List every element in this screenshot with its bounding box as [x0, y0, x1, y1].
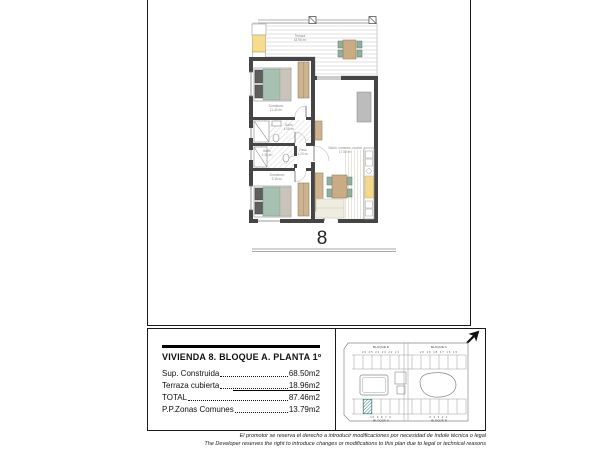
area-row: Terraza cubierta 18.96m2	[162, 378, 320, 390]
area-value: 13.79m2	[289, 405, 320, 414]
disclaimer: El promotor se reserva el derecho a intr…	[204, 433, 486, 448]
room-area: 1.20 m²	[298, 152, 309, 156]
title-rule	[162, 345, 320, 348]
highlighted-unit	[363, 399, 371, 413]
area-label: Terraza cubierta	[162, 381, 219, 390]
block-label: BLOQUE B	[431, 419, 447, 423]
dot-leader	[235, 412, 288, 413]
dot-leader	[220, 388, 288, 389]
dining-table-icon	[332, 175, 347, 198]
svg-text:20 19 18 17 16 15: 20 19 18 17 16 15	[420, 350, 458, 354]
planter-icon	[252, 24, 266, 58]
room-area: 9.15 m²	[272, 177, 283, 181]
area-label: Sup. Construida	[162, 369, 219, 378]
room-area: 17.50 m²	[339, 150, 352, 154]
plan-sheet: Terraza 18.96 m² Dormitorio 11.40 m² Bañ…	[0, 0, 615, 454]
room-area: 18.96 m²	[294, 38, 307, 42]
floor-plan-drawing: Terraza 18.96 m² Dormitorio 11.40 m² Bañ…	[0, 0, 615, 330]
bedroom-2-furniture	[254, 183, 309, 217]
unit-number: 8	[317, 228, 328, 249]
area-row: Sup. Construida 68.50m2	[162, 366, 320, 378]
area-row: P.P.Zonas Comunes 13.79m2	[162, 402, 320, 414]
dot-leader	[220, 376, 287, 377]
dot-leader	[188, 400, 288, 401]
area-row: TOTAL 87.46m2	[162, 390, 320, 402]
bedroom-1-furniture	[254, 62, 309, 101]
base-line	[252, 249, 396, 252]
svg-text:26 25 24 23 22 21: 26 25 24 23 22 21	[362, 350, 400, 354]
block-label: BLOQUE C	[431, 345, 448, 349]
room-area: 2.30 m²	[262, 153, 273, 157]
disclaimer-line-en: The Developer reserves the right to intr…	[204, 441, 486, 449]
pergola-beam	[258, 17, 377, 24]
block-label: BLOQUE D	[373, 345, 390, 349]
area-value: 87.46m2	[289, 393, 320, 402]
area-value: 68.50m2	[289, 369, 320, 378]
sofa-icon	[316, 199, 344, 218]
terrace-table-icon	[338, 40, 362, 59]
area-label: P.P.Zonas Comunes	[162, 405, 234, 414]
north-arrow-icon	[463, 329, 483, 347]
unit-numbers: 26 25 24 23 22 21 20 19 18 17 16 15 10 9…	[362, 350, 458, 419]
site-plan-cell: 26 25 24 23 22 21 20 19 18 17 16 15 10 9…	[336, 329, 485, 430]
top-plots	[352, 355, 466, 369]
room-area: 4.05 m²	[284, 127, 295, 131]
room-area: 11.40 m²	[270, 108, 282, 112]
disclaimer-line-es: El promotor se reserva el derecho a intr…	[204, 433, 486, 441]
title-block: VIVIENDA 8. BLOQUE A. PLANTA 1º Sup. Con…	[148, 329, 336, 430]
block-labels: BLOQUE D BLOQUE C BLOQUE A BLOQUE B	[373, 345, 448, 423]
area-label: TOTAL	[162, 393, 187, 402]
title-block-panel: VIVIENDA 8. BLOQUE A. PLANTA 1º Sup. Con…	[147, 328, 486, 431]
site-plan-drawing: 26 25 24 23 22 21 20 19 18 17 16 15 10 9…	[336, 329, 485, 429]
block-label: BLOQUE A	[373, 419, 390, 423]
plan-title: VIVIENDA 8. BLOQUE A. PLANTA 1º	[162, 352, 325, 362]
area-value: 18.96m2	[289, 381, 320, 390]
